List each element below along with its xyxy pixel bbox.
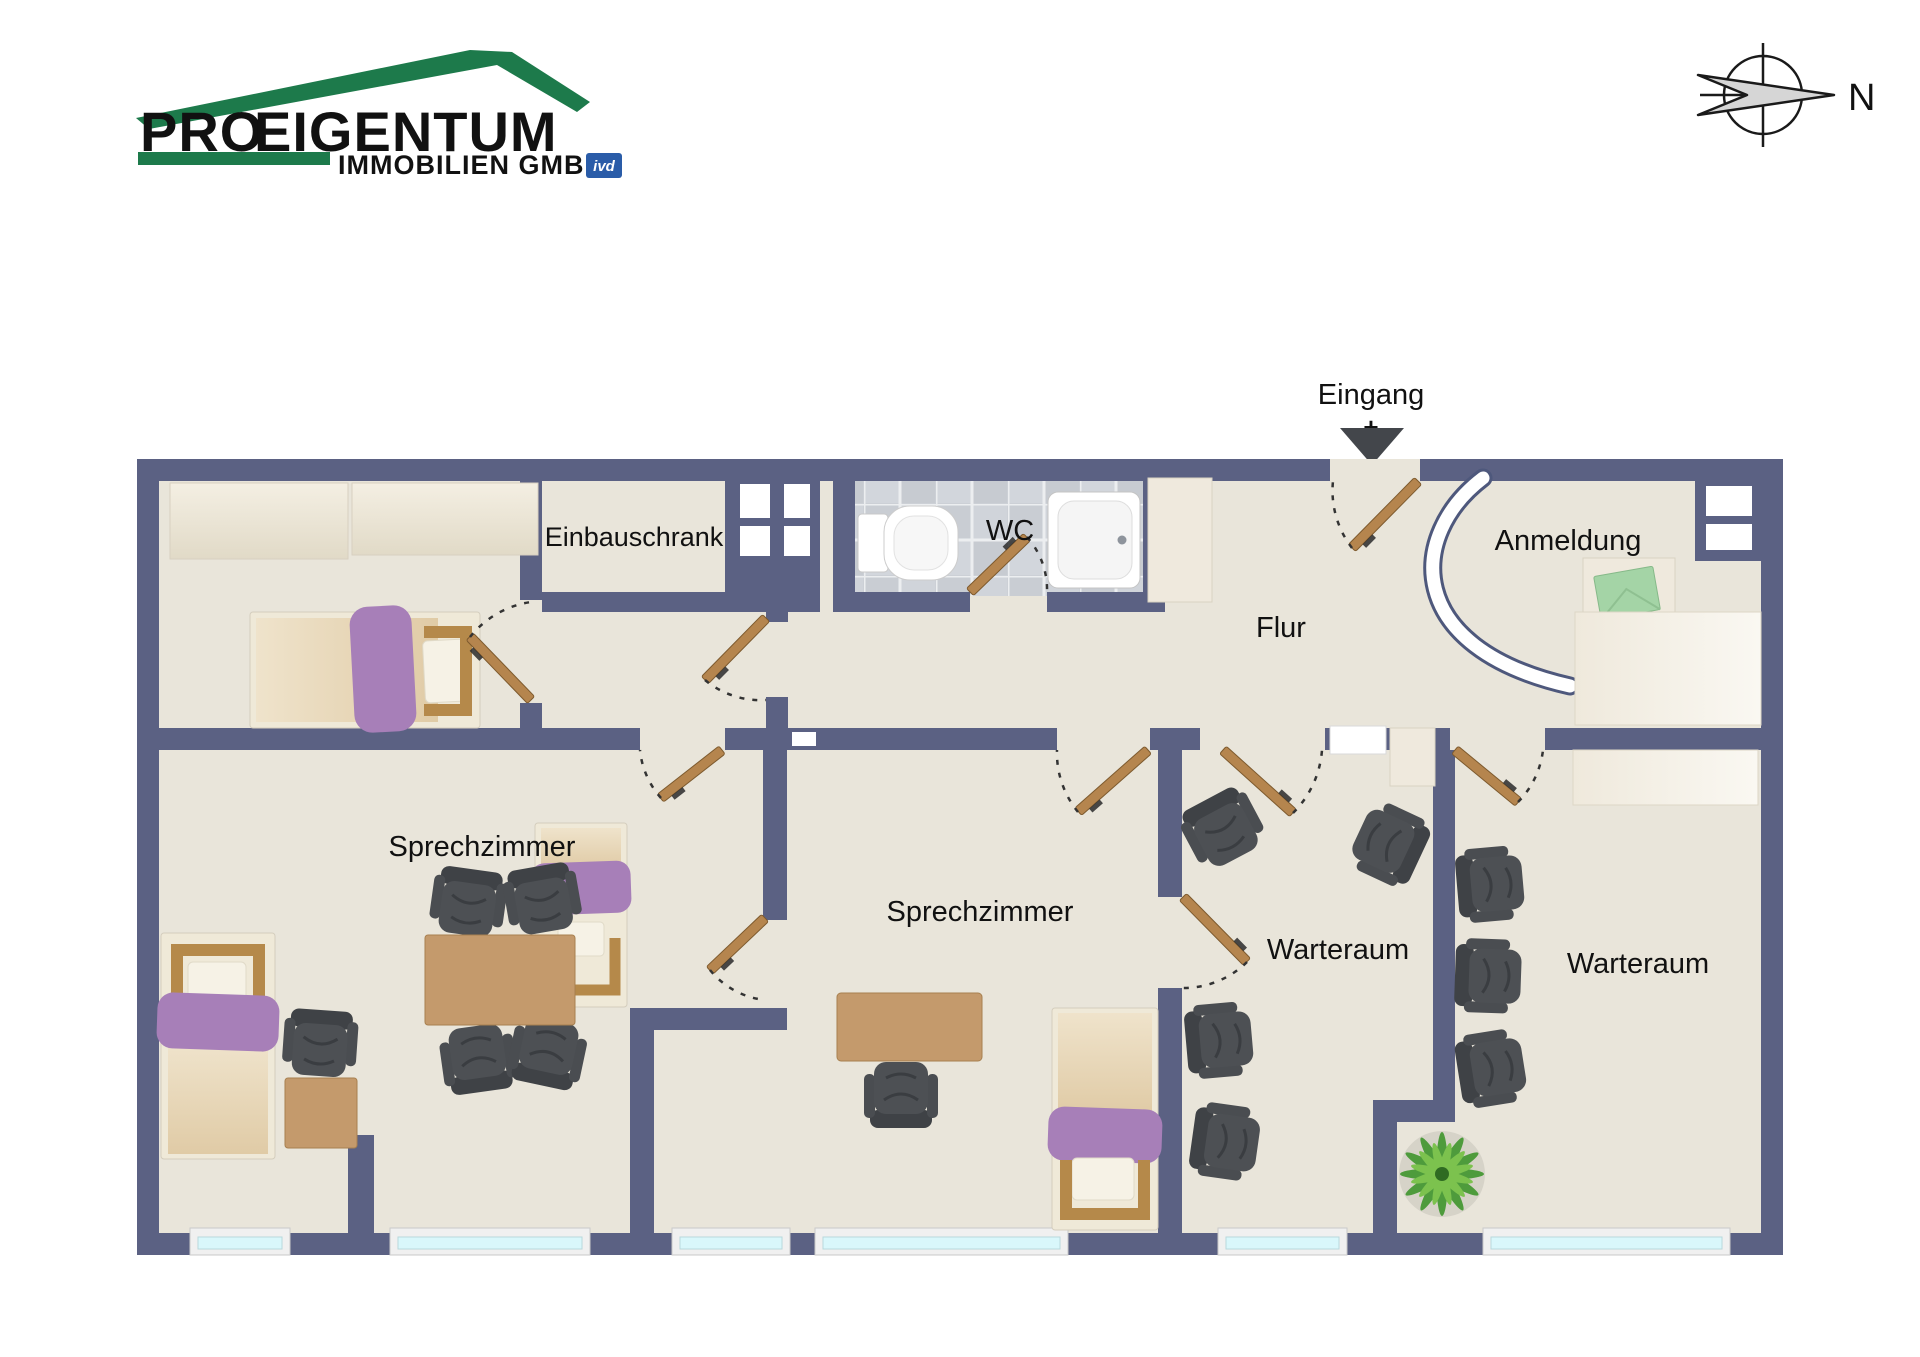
windows <box>190 1228 1730 1255</box>
label-warteraum-right: Warteraum <box>1567 948 1709 980</box>
wall-cabinet <box>170 483 348 559</box>
side-desk <box>285 1078 357 1148</box>
label-sprechzimmer-middle: Sprechzimmer <box>887 896 1074 928</box>
exam-bed <box>156 933 280 1159</box>
exam-bed <box>250 604 480 733</box>
exam-bed <box>1047 1008 1163 1230</box>
doctor-desk <box>837 993 982 1061</box>
wall-cabinet <box>352 483 538 555</box>
window <box>390 1228 590 1255</box>
label-anmeldung: Anmeldung <box>1495 525 1642 557</box>
plant-icon <box>1399 1131 1485 1217</box>
window <box>1483 1228 1730 1255</box>
entrance-marker: Eingang + <box>1318 379 1424 465</box>
label-warteraum-left: Warteraum <box>1267 934 1409 966</box>
window <box>815 1228 1068 1255</box>
compass-north-label: N <box>1848 77 1875 119</box>
hall-sideboard <box>1575 612 1761 725</box>
ivd-badge-label: ivd <box>593 158 616 175</box>
toilet-icon <box>858 506 958 580</box>
bathtub-icon <box>1048 492 1140 588</box>
meeting-table <box>425 935 575 1025</box>
pass-through-shelf <box>1390 728 1435 786</box>
floorplan-page: PRO EIGENTUM IMMOBILIEN GMBH ivd N Einga… <box>0 0 1920 1357</box>
entrance-label: Eingang <box>1318 379 1424 411</box>
logo-subtitle: IMMOBILIEN GMBH <box>338 150 605 180</box>
company-logo: PRO EIGENTUM IMMOBILIEN GMBH ivd <box>136 50 622 180</box>
waiting-sideboard <box>1573 750 1758 805</box>
bath-cabinet <box>1148 478 1212 602</box>
floorplan-canvas: PRO EIGENTUM IMMOBILIEN GMBH ivd N Einga… <box>0 0 1920 1357</box>
label-sprechzimmer-left: Sprechzimmer <box>389 831 576 863</box>
label-flur: Flur <box>1256 612 1306 644</box>
compass-rose-icon: N <box>1698 43 1875 147</box>
label-wc: WC <box>986 515 1034 547</box>
office-chair-icon <box>864 1062 938 1128</box>
window <box>1218 1228 1347 1255</box>
window <box>672 1228 790 1255</box>
window <box>190 1228 290 1255</box>
label-einbauschrank: Einbauschrank <box>545 522 724 552</box>
logo-text-pro: PRO <box>140 100 264 163</box>
